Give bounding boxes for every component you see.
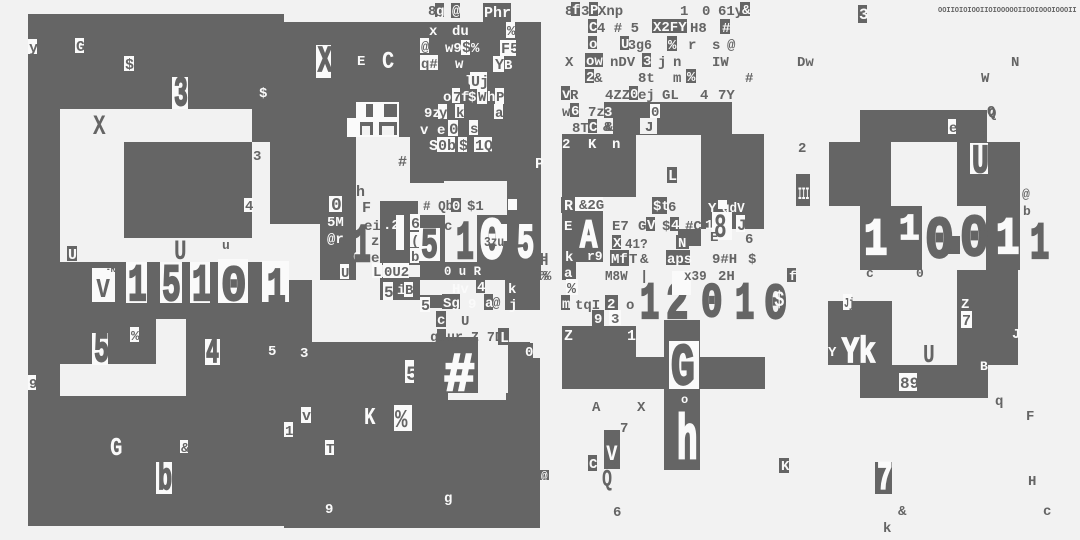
svg-text:Y: Y (828, 345, 837, 361)
svg-text:u: u (222, 238, 230, 253)
svg-text:$: $ (125, 57, 134, 74)
svg-text:1: 1 (640, 275, 659, 334)
svg-text:G: G (76, 39, 85, 56)
svg-text:v: v (420, 123, 429, 139)
svg-text:n: n (612, 137, 620, 153)
svg-text:g: g (444, 491, 452, 507)
svg-text:U: U (68, 247, 77, 264)
svg-text:0: 0 (525, 345, 533, 361)
svg-text:2: 2 (562, 137, 570, 153)
svg-text:m: m (673, 71, 681, 87)
svg-text:&: & (181, 441, 190, 457)
svg-text:1: 1 (1030, 215, 1049, 274)
svg-text:$: $ (459, 138, 468, 155)
svg-text:9: 9 (594, 312, 602, 328)
svg-text:x39: x39 (684, 268, 707, 284)
svg-text:o: o (681, 393, 688, 407)
svg-text:U: U (174, 236, 187, 268)
svg-text:k: k (565, 250, 573, 266)
svg-text:nDV: nDV (610, 55, 636, 71)
svg-text:U: U (341, 266, 349, 282)
svg-text:5: 5 (384, 284, 394, 302)
svg-text:E: E (564, 219, 572, 235)
svg-text:N: N (678, 236, 686, 252)
svg-text:$: $ (462, 40, 471, 57)
svg-text:L: L (668, 168, 677, 185)
svg-text:e: e (949, 121, 957, 137)
svg-text:c: c (444, 219, 452, 235)
svg-text:0: 0 (452, 199, 460, 215)
svg-text:1: 1 (267, 262, 286, 317)
svg-text:%: % (567, 281, 577, 298)
svg-text:N: N (1011, 55, 1019, 71)
svg-text:Y: Y (495, 57, 504, 74)
svg-text:3: 3 (300, 346, 308, 362)
svg-text:#: # (444, 345, 475, 407)
svg-text:Mf: Mf (611, 252, 628, 268)
svg-text:3zu: 3zu (484, 234, 504, 251)
svg-text:H8: H8 (690, 21, 707, 37)
svg-text:6: 6 (613, 505, 621, 521)
svg-text:1: 1 (735, 275, 754, 334)
svg-text:7: 7 (620, 421, 628, 437)
svg-text:0: 0 (651, 105, 659, 121)
svg-text:0: 0 (449, 121, 459, 139)
svg-text:K: K (364, 404, 376, 432)
svg-text:J: J (1012, 327, 1020, 343)
svg-text:$1: $1 (467, 199, 484, 215)
svg-text:2: 2 (607, 297, 615, 313)
svg-text:T: T (326, 442, 334, 458)
svg-text:y: y (29, 40, 38, 57)
svg-text:G: G (671, 336, 695, 401)
svg-text:# Qb: # Qb (423, 198, 453, 214)
svg-text:Q: Q (602, 467, 612, 494)
svg-text:1Q: 1Q (475, 138, 493, 155)
svg-text:3: 3 (604, 105, 612, 121)
svg-text:$: $ (468, 90, 476, 106)
svg-text:OOIIOIOIOOIIOIOOOOOIIOOIOOOIOO: OOIIOIOIOOIIOIOOOOOIIOOIOOOIOOOII (938, 7, 1077, 15)
svg-text:j: j (509, 298, 517, 314)
svg-text:@: @ (452, 4, 461, 20)
svg-text:%: % (395, 406, 408, 436)
svg-text:X: X (93, 111, 106, 143)
svg-text:&2G: &2G (579, 198, 604, 214)
svg-text:1: 1 (192, 256, 211, 315)
svg-text:c: c (1043, 504, 1051, 520)
svg-text:X: X (318, 43, 333, 83)
svg-text:&: & (594, 71, 603, 87)
svg-text:4: 4 (671, 218, 679, 234)
svg-text:Sg: Sg (443, 296, 460, 312)
svg-text:6: 6 (411, 216, 420, 233)
svg-text:Q: Q (988, 106, 996, 122)
svg-text:s: s (470, 122, 478, 138)
svg-text:A: A (592, 400, 601, 416)
svg-text:X: X (637, 400, 646, 416)
svg-text:0b: 0b (438, 138, 456, 155)
svg-text:Jj: Jj (844, 296, 854, 312)
svg-text:@: @ (727, 38, 736, 54)
svg-text:r9: r9 (587, 249, 603, 264)
svg-text:C: C (589, 120, 598, 136)
svg-text:k: k (883, 521, 891, 537)
svg-text:3: 3 (581, 4, 589, 20)
svg-text:w9: w9 (445, 41, 462, 57)
svg-text:$: $ (259, 86, 267, 102)
svg-text:@: @ (492, 296, 501, 312)
svg-text:5: 5 (517, 217, 534, 272)
svg-text:3: 3 (253, 149, 261, 165)
svg-text:E: E (710, 230, 718, 246)
svg-text:7: 7 (877, 457, 893, 502)
svg-text:6: 6 (668, 200, 676, 216)
svg-text:j: j (658, 55, 666, 71)
svg-text:P: P (496, 90, 504, 106)
svg-text:0: 0 (916, 266, 924, 281)
svg-text:ow: ow (586, 54, 603, 70)
svg-text:3g6: 3g6 (628, 39, 652, 54)
svg-text:o: o (626, 298, 634, 314)
svg-text:S: S (429, 138, 438, 155)
svg-text:i: i (980, 130, 987, 144)
svg-text:#: # (745, 71, 753, 87)
svg-text:%: % (131, 329, 140, 345)
svg-text:b: b (411, 250, 419, 266)
svg-text:GL: GL (662, 88, 679, 104)
svg-text:k: k (456, 106, 464, 122)
svg-text:Z: Z (961, 297, 969, 313)
svg-text:&: & (640, 252, 649, 268)
svg-text:1: 1 (627, 328, 636, 345)
svg-text:h: h (356, 184, 365, 201)
svg-text:1: 1 (353, 218, 371, 279)
svg-text:c: c (612, 457, 620, 473)
svg-text:B: B (980, 359, 988, 374)
svg-text:9#H: 9#H (712, 252, 737, 268)
svg-text:Z: Z (564, 328, 573, 345)
svg-text:V: V (647, 218, 656, 234)
svg-text:9: 9 (29, 377, 37, 393)
svg-text:k: k (508, 282, 516, 298)
svg-text:w: w (562, 105, 571, 121)
svg-text:0: 0 (702, 4, 710, 20)
svg-text:X: X (565, 55, 574, 71)
svg-text:v: v (302, 408, 311, 425)
svg-text:89: 89 (900, 375, 919, 393)
svg-text:6: 6 (571, 104, 579, 120)
svg-text:ur Z 7D: ur Z 7D (447, 331, 503, 346)
svg-text:Dw: Dw (797, 55, 814, 71)
svg-text:G: G (110, 434, 122, 464)
svg-text:o: o (443, 90, 451, 106)
svg-text:w: w (455, 57, 464, 73)
svg-text:1: 1 (128, 256, 147, 315)
svg-text:#C: #C (685, 219, 702, 235)
svg-text:5: 5 (421, 298, 430, 315)
svg-text:aps: aps (667, 252, 692, 268)
svg-text:&: & (742, 3, 751, 19)
svg-text:h: h (487, 90, 495, 106)
svg-text:%: % (687, 70, 696, 86)
svg-text:%: % (507, 24, 516, 40)
svg-text:h: h (677, 407, 697, 478)
svg-text:0: 0 (960, 208, 989, 273)
svg-text:n: n (673, 55, 681, 71)
svg-text:8t: 8t (638, 71, 655, 87)
svg-text:R: R (570, 88, 579, 104)
svg-text:0: 0 (331, 196, 342, 216)
svg-text:4: 4 (477, 280, 485, 296)
svg-text:gd: gd (430, 330, 447, 346)
svg-text:3: 3 (611, 312, 619, 328)
svg-text:X2FY: X2FY (653, 20, 687, 36)
svg-text:W: W (981, 71, 990, 87)
svg-text:7: 7 (962, 313, 971, 330)
svg-text:9: 9 (325, 502, 333, 518)
svg-text:61y: 61y (718, 4, 744, 20)
svg-text:$: $ (662, 219, 670, 235)
svg-text:x: x (429, 24, 438, 40)
svg-text:c: c (437, 313, 445, 329)
svg-text:1: 1 (899, 209, 920, 250)
svg-text:P: P (535, 156, 544, 173)
svg-text:e: e (437, 123, 445, 139)
svg-text:@: @ (421, 40, 430, 56)
svg-text:@r: @r (327, 232, 344, 248)
svg-text:f: f (789, 269, 797, 284)
svg-text:2H: 2H (718, 269, 735, 285)
svg-text:&: & (603, 120, 612, 136)
svg-text:$: $ (774, 287, 785, 312)
svg-text:K: K (588, 137, 597, 153)
svg-text:W: W (478, 90, 487, 106)
svg-text:2: 2 (798, 141, 806, 157)
svg-text:#: # (398, 154, 407, 171)
svg-text:b: b (158, 459, 172, 501)
svg-text:M8W: M8W (605, 268, 628, 284)
svg-text:r: r (688, 38, 696, 54)
svg-text:4ZZ: 4ZZ (605, 88, 630, 104)
svg-text:B: B (405, 283, 414, 299)
svg-text:R: R (564, 198, 573, 215)
svg-text:1: 1 (864, 211, 887, 270)
svg-text:1: 1 (996, 210, 1019, 269)
svg-text:Yk: Yk (842, 332, 876, 373)
svg-text:J: J (645, 120, 653, 136)
svg-text:@: @ (541, 471, 548, 483)
svg-text:ej: ej (638, 88, 655, 104)
svg-text:6: 6 (745, 232, 753, 248)
svg-text:5: 5 (94, 327, 109, 374)
svg-text:a: a (495, 106, 504, 122)
svg-text:(: ( (411, 234, 419, 250)
svg-text:%: % (471, 41, 480, 57)
svg-text:a: a (564, 266, 573, 282)
svg-text:T: T (629, 252, 637, 268)
svg-text:4: 4 (245, 199, 253, 215)
svg-text:C: C (589, 457, 598, 473)
svg-text:5M: 5M (327, 215, 344, 231)
svg-text:q#: q# (421, 57, 438, 73)
svg-text:C: C (382, 48, 394, 76)
svg-text:7Y: 7Y (718, 88, 735, 104)
svg-text:5: 5 (268, 344, 276, 360)
svg-text:H: H (540, 251, 548, 267)
svg-text:7z: 7z (588, 105, 605, 121)
svg-text:E7: E7 (612, 219, 629, 235)
svg-text:G: G (638, 219, 646, 235)
svg-text:F: F (362, 200, 371, 217)
svg-text:3: 3 (174, 72, 188, 119)
svg-text:IW: IW (712, 55, 729, 71)
svg-text:&: & (898, 504, 907, 520)
svg-text:o: o (589, 37, 597, 53)
svg-text:$: $ (748, 252, 756, 268)
svg-text:X: X (613, 236, 622, 252)
svg-text:L: L (500, 330, 509, 347)
svg-text:41?: 41? (625, 236, 648, 252)
svg-text:9: 9 (468, 297, 476, 313)
svg-text:8T: 8T (572, 121, 589, 137)
svg-text:Xnp: Xnp (598, 4, 623, 20)
svg-text:f: f (572, 3, 580, 19)
svg-text:m: m (562, 297, 570, 313)
svg-text:L: L (373, 265, 381, 281)
svg-text:K: K (781, 459, 790, 475)
svg-text:Uj: Uj (471, 74, 489, 91)
svg-text:F: F (1026, 409, 1034, 425)
svg-text:Phr: Phr (484, 5, 511, 22)
svg-text:z: z (371, 234, 379, 250)
svg-text:U: U (621, 37, 629, 53)
svg-text:III: III (798, 186, 809, 206)
svg-text:q: q (995, 394, 1003, 410)
svg-text:0 u R: 0 u R (444, 264, 481, 279)
svg-text:U: U (461, 314, 469, 330)
svg-text:0U2: 0U2 (384, 265, 409, 281)
svg-text:H: H (1028, 474, 1036, 490)
svg-text:#: # (722, 21, 730, 37)
svg-text:y: y (439, 106, 448, 122)
svg-text:1: 1 (680, 4, 688, 20)
svg-text:F5: F5 (501, 41, 519, 58)
svg-text:4: 4 (700, 88, 708, 104)
svg-text:B: B (504, 58, 513, 74)
svg-text:0: 0 (221, 258, 247, 315)
svg-text:s: s (712, 38, 720, 54)
svg-text:U: U (923, 341, 935, 370)
svg-text:%: % (540, 269, 549, 285)
svg-text:3: 3 (859, 6, 869, 24)
svg-text:%: % (668, 38, 677, 54)
svg-text:5: 5 (421, 222, 438, 270)
svg-text:E: E (357, 54, 365, 70)
svg-text:4 # 5: 4 # 5 (597, 21, 639, 37)
svg-text:0: 0 (925, 210, 954, 275)
svg-text:1: 1 (285, 424, 293, 440)
svg-text:-R: -R (106, 263, 115, 276)
svg-text:4: 4 (206, 332, 219, 373)
svg-text:3: 3 (643, 54, 651, 70)
svg-text:g: g (436, 4, 444, 20)
svg-text:du: du (452, 24, 469, 40)
svg-text:U: U (972, 140, 989, 185)
svg-text:.2: .2 (383, 218, 400, 234)
svg-text:@: @ (1022, 187, 1030, 202)
svg-text:5: 5 (406, 364, 418, 387)
